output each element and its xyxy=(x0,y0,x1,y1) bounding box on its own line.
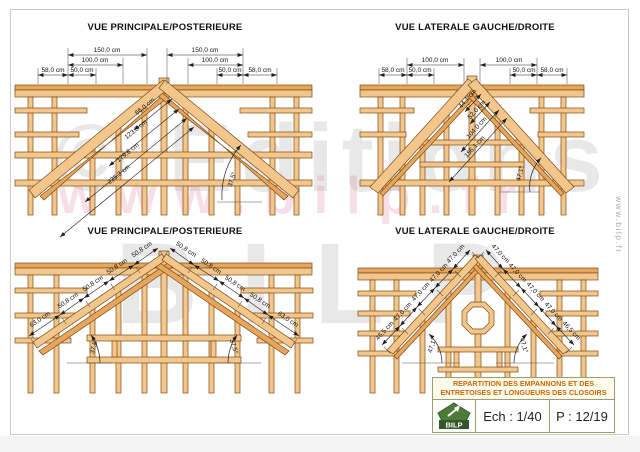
truss-drawing-top-left: 150,0 cm 150,0 cm 100,0 cm 100,0 cm 58,0… xyxy=(12,40,315,240)
rafter-dim-label: 50,8 cm xyxy=(57,291,80,310)
bilp-logo-icon: BILP xyxy=(436,402,472,430)
rafter-dim-label: 50,8 cm xyxy=(131,240,154,259)
page-number: P : 12/19 xyxy=(550,400,614,432)
angle-label: 47,1° xyxy=(426,337,438,354)
dim-label: 100,0 cm xyxy=(496,57,523,64)
dim-label: 100,0 cm xyxy=(202,57,229,64)
dim-label: 50,0 cm xyxy=(218,67,241,74)
title-block-row: BILP Ech : 1/40 P : 12/19 xyxy=(433,400,614,432)
rafter-dim-label: 50,8 cm xyxy=(248,291,271,310)
timber-structure xyxy=(15,78,312,215)
timber-structure xyxy=(15,251,313,393)
dim-label: 50,0 cm xyxy=(70,67,93,74)
dim-label: 58,0 cm xyxy=(41,67,64,74)
plan-page: © Editions BILP www.bilp.fr www.bilp.fr … xyxy=(0,0,640,452)
dim-label: 150,0 cm xyxy=(192,47,219,54)
scale-value: Ech : 1/40 xyxy=(476,400,550,432)
dimension-annotations: 150,0 cm 150,0 cm 100,0 cm 100,0 cm 58,0… xyxy=(38,47,277,237)
view-title-bottom-right: VUE LATERALE GAUCHE/DROITE xyxy=(350,226,600,237)
rafter-dim-label: 50,8 cm xyxy=(174,240,197,259)
bilp-logo: BILP xyxy=(433,400,476,432)
truss-drawing-bottom-right: 46,5 cm 47,0 cm 47,0 cm 47,0 cm 47,0 cm … xyxy=(350,243,615,398)
title-block-line2: ENTRETOISES ET LONGUEURS DES CLOSOIRS xyxy=(434,389,613,398)
truss-drawing-bottom-left: 63,0 cm 50,8 cm 50,8 cm 50,8 cm 50,8 cm … xyxy=(12,243,315,398)
dim-label: 50,0 cm xyxy=(408,67,431,74)
truss-drawing-top-right: 100,0 cm 100,0 cm 58,0 cm 50,0 cm 50,0 c… xyxy=(352,40,612,240)
dim-label: 150,0 cm xyxy=(94,47,121,54)
page-bottom-margin xyxy=(0,436,640,452)
view-title-top-left: VUE PRINCIPALE/POSTERIEURE xyxy=(20,22,310,33)
dim-label: 58,0 cm xyxy=(540,67,563,74)
side-url-text: www.bilp.fr xyxy=(614,196,624,254)
dim-label: 100,0 cm xyxy=(82,57,109,64)
dim-label: 50,0 cm xyxy=(512,67,535,74)
title-block: REPARTITION DES EMPANNONS ET DES ENTRETO… xyxy=(432,377,615,433)
view-title-bottom-left: VUE PRINCIPALE/POSTERIEURE xyxy=(20,226,310,237)
dim-label: 58,0 cm xyxy=(381,67,404,74)
angle-label: 47,1° xyxy=(518,337,530,354)
dim-label: 58,0 cm xyxy=(248,67,271,74)
rafter-dim-label: 47,0 cm xyxy=(445,243,466,265)
rafter-dim-label: 50,8 cm xyxy=(223,274,246,293)
dim-label: 100,0 cm xyxy=(422,57,449,64)
title-block-heading: REPARTITION DES EMPANNONS ET DES ENTRETO… xyxy=(433,378,614,400)
bilp-logo-text: BILP xyxy=(445,421,462,430)
rafter-dim-label: 47,0 cm xyxy=(490,243,511,265)
view-title-top-right: VUE LATERALE GAUCHE/DROITE xyxy=(350,22,600,33)
rafter-dim-label: 50,8 cm xyxy=(82,274,105,293)
